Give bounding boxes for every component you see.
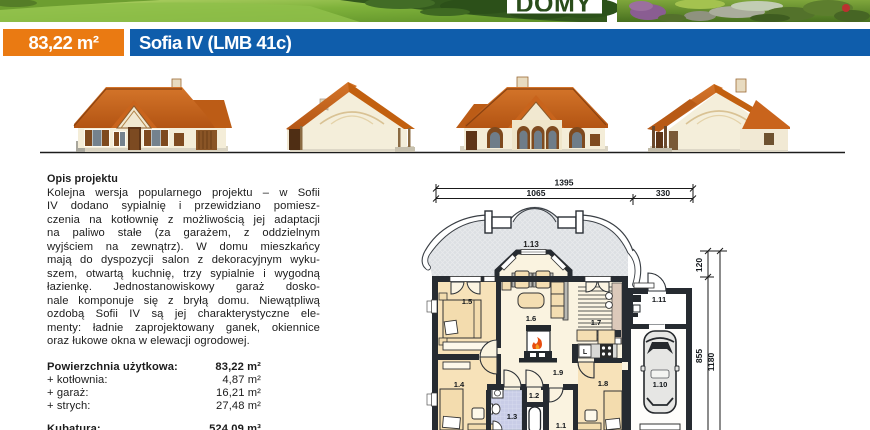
- svg-text:1.3: 1.3: [507, 412, 518, 421]
- svg-text:1.9: 1.9: [553, 368, 564, 377]
- svg-text:1.7: 1.7: [591, 318, 602, 327]
- svg-text:1395: 1395: [555, 178, 574, 188]
- svg-text:855: 855: [694, 349, 704, 363]
- svg-text:L: L: [583, 349, 588, 356]
- svg-text:1.1: 1.1: [556, 421, 567, 430]
- svg-text:1180: 1180: [706, 353, 716, 372]
- svg-text:1.2: 1.2: [529, 391, 540, 400]
- svg-text:DOMY: DOMY: [516, 0, 593, 18]
- svg-text:1.13: 1.13: [523, 240, 539, 249]
- svg-text:1.5: 1.5: [462, 297, 473, 306]
- svg-text:1065: 1065: [527, 188, 546, 198]
- svg-text:330: 330: [656, 188, 670, 198]
- svg-text:1.11: 1.11: [652, 295, 667, 304]
- svg-text:1.10: 1.10: [653, 380, 668, 389]
- svg-text:1.8: 1.8: [598, 379, 609, 388]
- svg-text:1.4: 1.4: [454, 380, 465, 389]
- svg-text:1.6: 1.6: [526, 314, 537, 323]
- svg-text:120: 120: [694, 258, 704, 272]
